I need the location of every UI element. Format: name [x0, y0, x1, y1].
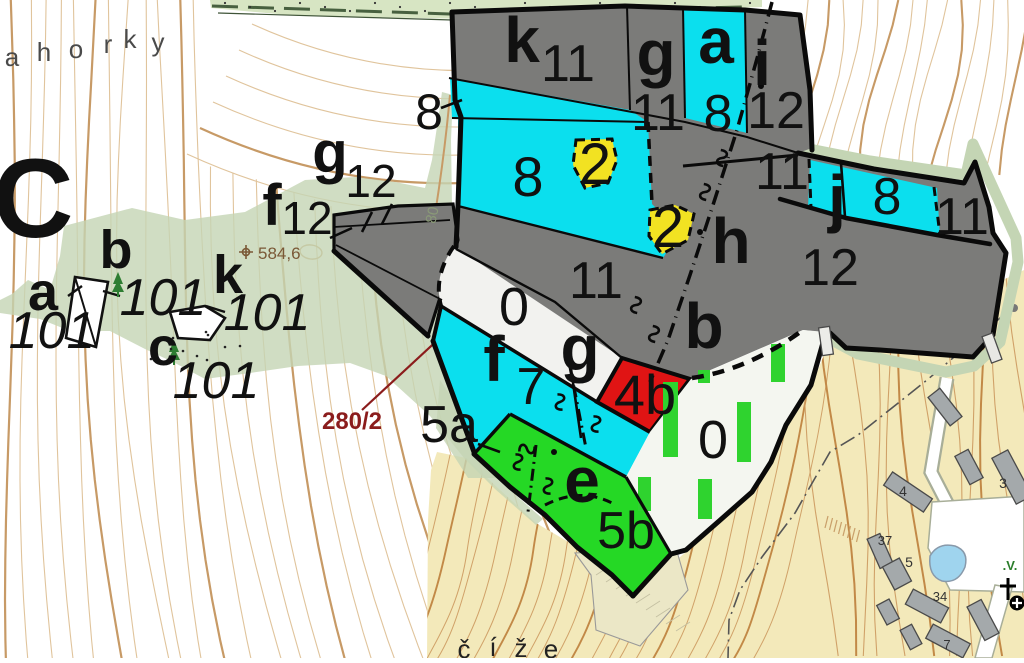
svg-text:g: g: [560, 312, 599, 384]
svg-text:k: k: [504, 4, 540, 76]
svg-text:8: 8: [873, 168, 902, 226]
svg-text:a: a: [698, 5, 734, 77]
svg-text:0: 0: [698, 410, 728, 470]
svg-text:11: 11: [755, 143, 809, 201]
svg-text:12: 12: [281, 192, 332, 244]
svg-text:ž: ž: [515, 633, 528, 658]
svg-text:b: b: [684, 290, 723, 362]
svg-text:k: k: [124, 24, 138, 54]
svg-text:101: 101: [173, 352, 260, 410]
svg-text:12: 12: [747, 82, 805, 140]
svg-text:e: e: [544, 634, 558, 658]
svg-text:12: 12: [345, 155, 396, 207]
svg-text:.V.: .V.: [1003, 558, 1018, 573]
svg-text:12: 12: [801, 239, 859, 297]
svg-text:4: 4: [899, 483, 907, 499]
svg-text:3: 3: [999, 475, 1007, 491]
svg-text:7: 7: [943, 637, 950, 652]
svg-text:4b: 4b: [614, 363, 676, 426]
svg-text:11: 11: [935, 188, 989, 246]
svg-text:f: f: [483, 323, 505, 395]
svg-text:101: 101: [224, 284, 311, 342]
svg-text:34: 34: [933, 589, 947, 604]
svg-text:101: 101: [9, 302, 96, 360]
svg-text:g: g: [312, 120, 347, 185]
svg-text:280/2: 280/2: [322, 408, 382, 435]
svg-text:2: 2: [652, 195, 684, 260]
svg-text:80: 80: [423, 205, 443, 225]
svg-text:č: č: [458, 634, 471, 658]
svg-text:584,6: 584,6: [258, 244, 301, 263]
svg-text:r: r: [104, 29, 113, 59]
svg-text:j: j: [827, 162, 846, 234]
svg-text:8: 8: [415, 84, 443, 140]
svg-text:a: a: [5, 42, 20, 72]
svg-text:11: 11: [631, 84, 685, 142]
svg-text:101: 101: [120, 269, 207, 327]
svg-text:37: 37: [878, 533, 892, 548]
svg-text:e: e: [564, 444, 600, 516]
svg-text:o: o: [69, 34, 83, 64]
svg-text:8: 8: [704, 85, 733, 143]
svg-text:í: í: [489, 632, 497, 658]
svg-text:8: 8: [512, 145, 543, 208]
svg-text:h: h: [711, 205, 750, 277]
svg-text:11: 11: [569, 252, 623, 310]
svg-text:g: g: [636, 17, 675, 89]
svg-text:5b: 5b: [597, 502, 655, 560]
svg-text:11: 11: [541, 35, 595, 93]
svg-text:5a: 5a: [420, 396, 478, 454]
svg-text:y: y: [152, 27, 165, 57]
svg-text:C: C: [0, 136, 73, 261]
svg-text:5: 5: [905, 554, 913, 570]
svg-text:7: 7: [517, 358, 546, 416]
svg-text:2: 2: [579, 132, 611, 197]
svg-text:f: f: [262, 173, 282, 238]
svg-text:h: h: [37, 37, 51, 67]
